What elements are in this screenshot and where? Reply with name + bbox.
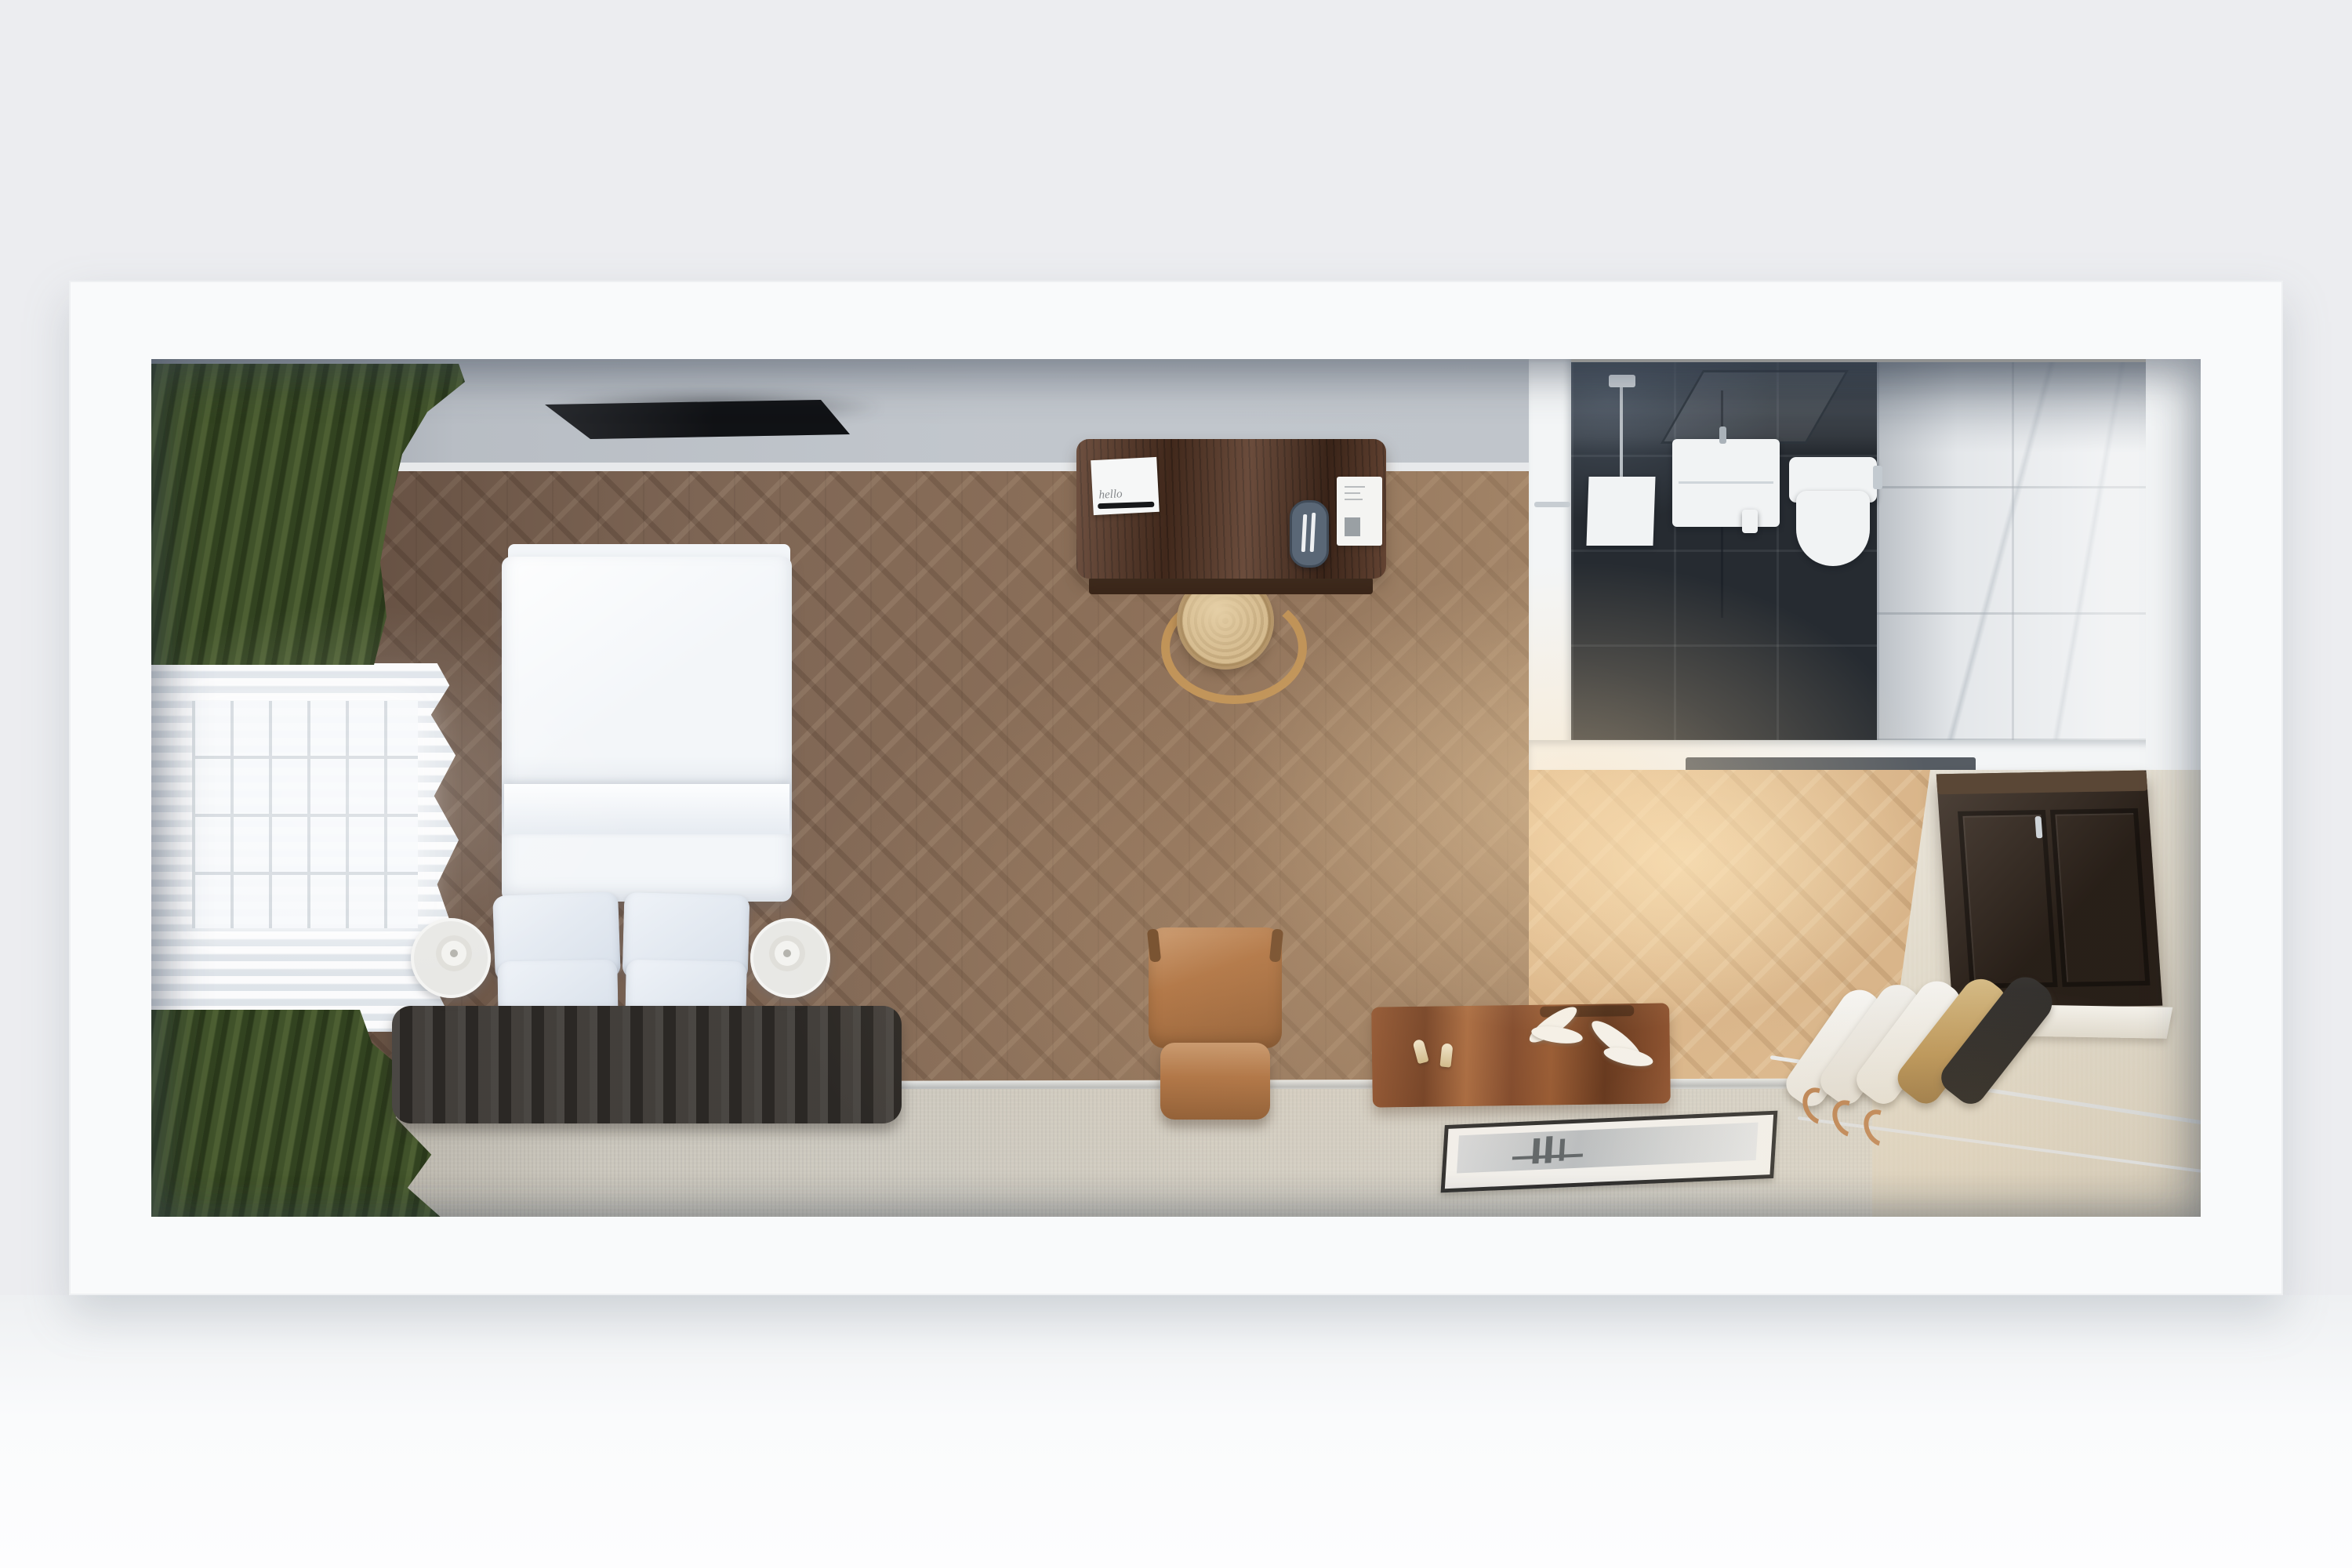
bathroom-north-wall-shade (1571, 362, 2146, 452)
info-booklet (1337, 477, 1382, 546)
desk-drawers (1089, 577, 1373, 594)
bed-duvet (502, 557, 792, 902)
photo-detail (1544, 1136, 1552, 1163)
lamp-right (769, 935, 805, 971)
toilet-paper-holder (1742, 510, 1758, 533)
notepad-text: hello (1098, 488, 1123, 503)
bathroom-left-wall (1529, 359, 1571, 770)
room-render: hello (0, 0, 2352, 1568)
nightstand-left (411, 918, 491, 998)
booklet-text-line (1345, 492, 1360, 494)
pen-tray (1290, 500, 1329, 568)
lamp-right-base (783, 949, 791, 957)
shower-head (1609, 375, 1635, 387)
booklet-text-line (1345, 486, 1365, 488)
headboard (392, 1006, 902, 1123)
bathroom-right-wall (2146, 359, 2201, 770)
photo-detail (1532, 1138, 1540, 1163)
leather-chair-seat (1160, 1043, 1270, 1120)
lamp-left-base (450, 949, 458, 957)
room-interior: hello (151, 359, 2201, 1217)
shower-panel (1586, 477, 1655, 546)
lamp-left (436, 935, 472, 971)
shower-pipe (1620, 380, 1623, 478)
bed-sheet-fold (504, 784, 789, 834)
shower-valve-bar (1534, 502, 1570, 507)
vanity-sink (1672, 439, 1780, 527)
faucet (1719, 426, 1726, 444)
white-pen-icon (1301, 514, 1308, 552)
pen-icon (1098, 502, 1154, 510)
nightstand-right (750, 918, 830, 998)
vanity-drawer-line (1679, 481, 1773, 484)
cabinet-door-right (2050, 808, 2151, 987)
notepad: hello (1091, 457, 1160, 515)
window (192, 701, 418, 928)
cabinet-crown (1936, 771, 2148, 795)
picture-photo (1457, 1123, 1759, 1174)
booklet-photo (1345, 517, 1360, 536)
toilet-bowl (1796, 491, 1870, 566)
cabinet-door-left (1958, 810, 2058, 989)
flush-plate (1873, 466, 1882, 489)
page-bottom-fade (0, 1295, 2352, 1568)
leather-chair-back (1149, 927, 1282, 1048)
minibar-cabinet (1936, 771, 2163, 1010)
booklet-text-line (1345, 499, 1363, 500)
white-pen-icon (1310, 513, 1316, 552)
